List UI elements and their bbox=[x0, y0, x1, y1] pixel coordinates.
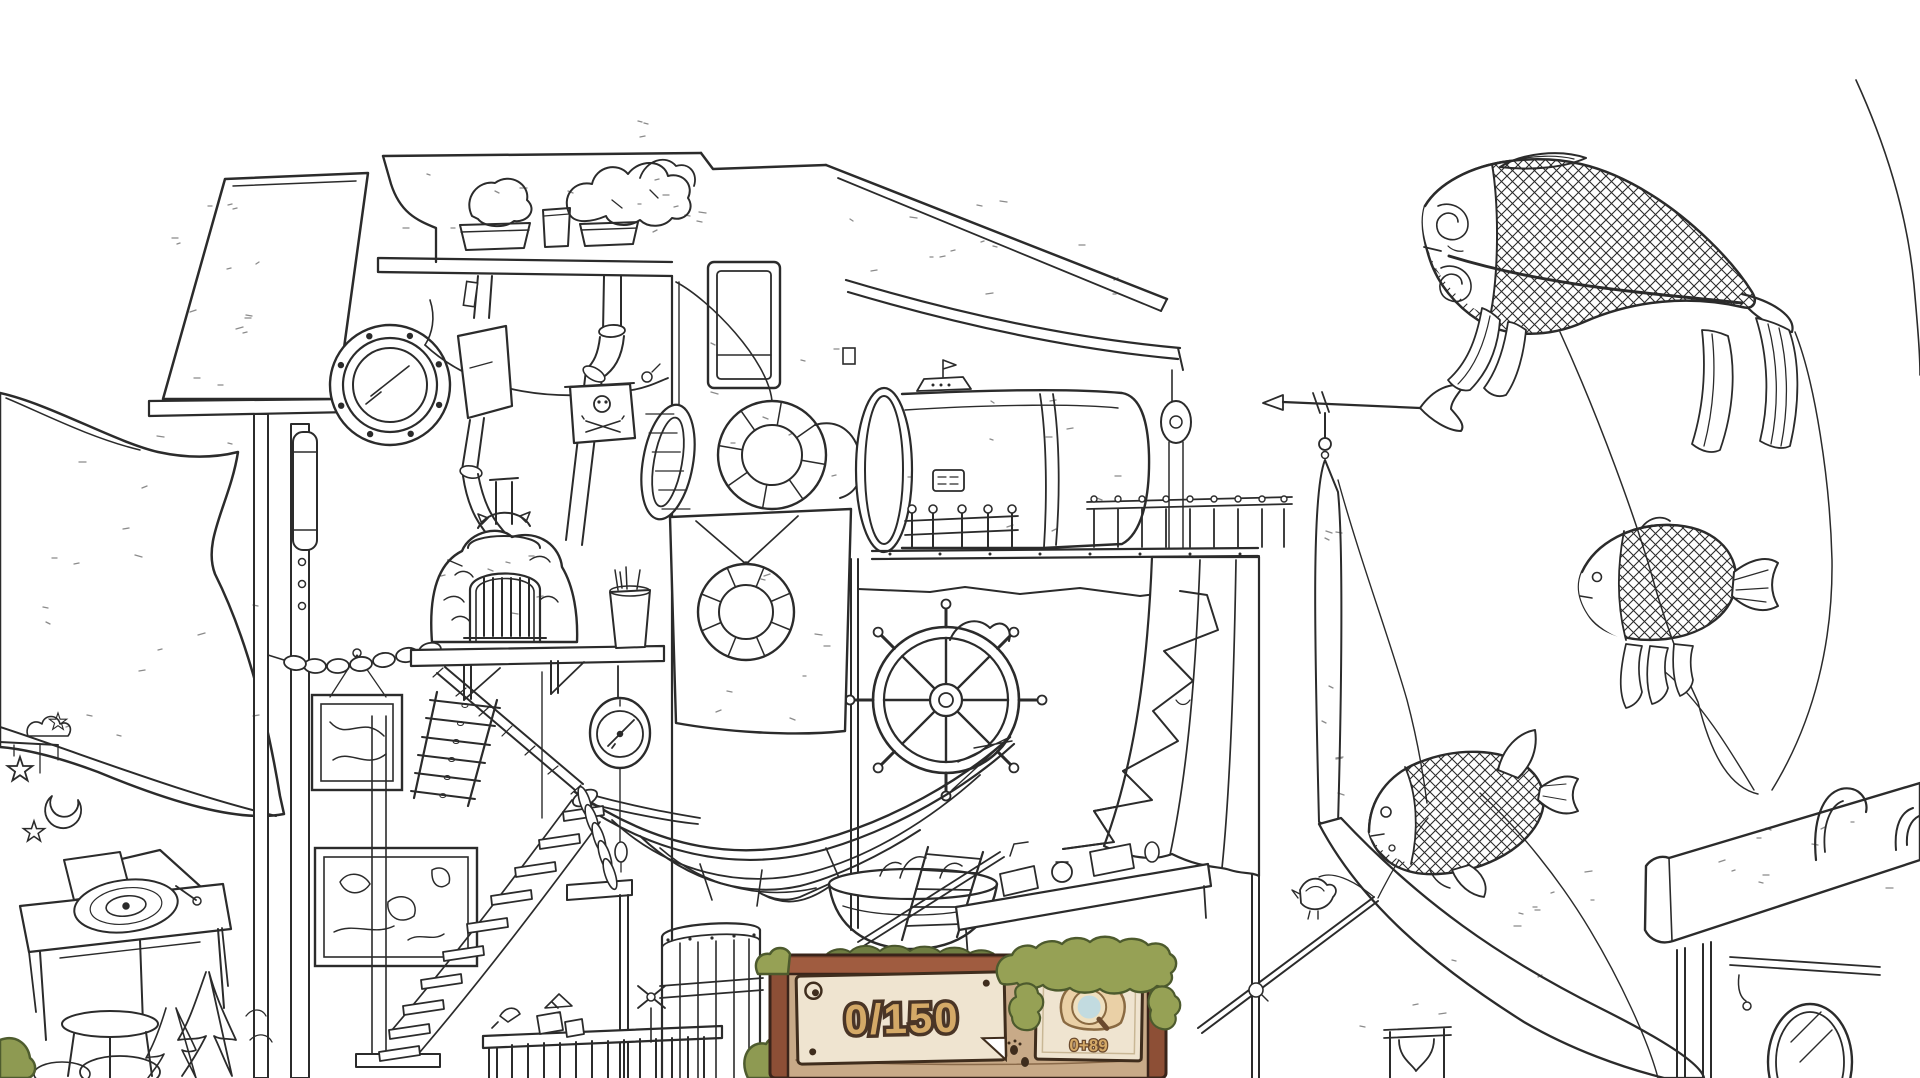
svg-text:0+89: 0+89 bbox=[1069, 1036, 1108, 1056]
svg-text:0/150: 0/150 bbox=[844, 994, 960, 1043]
